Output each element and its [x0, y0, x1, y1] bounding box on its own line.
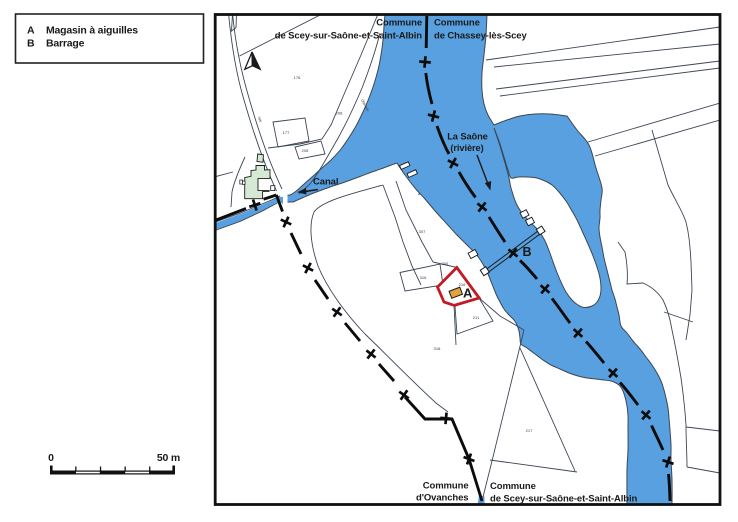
svg-text:Commune: Commune [376, 18, 422, 29]
svg-text:Magasin à aiguilles: Magasin à aiguilles [46, 25, 138, 37]
svg-text:Barrage: Barrage [46, 38, 85, 50]
svg-text:208: 208 [302, 148, 309, 153]
svg-text:211: 211 [473, 315, 480, 320]
svg-text:de Chassey-lès-Scey: de Chassey-lès-Scey [434, 31, 527, 42]
svg-text:La Saône: La Saône [447, 132, 488, 142]
svg-text:316: 316 [420, 275, 427, 280]
svg-text:Commune: Commune [434, 18, 480, 29]
svg-text:318: 318 [434, 346, 441, 351]
svg-text:307: 307 [419, 229, 426, 234]
svg-text:177: 177 [283, 130, 290, 135]
svg-text:(rivière): (rivière) [450, 143, 483, 153]
svg-text:A: A [27, 25, 35, 37]
svg-text:de Scey-sur-Saône-et-Saint-Alb: de Scey-sur-Saône-et-Saint-Albin [275, 31, 423, 42]
svg-text:B: B [523, 245, 532, 259]
svg-text:305: 305 [442, 261, 449, 266]
svg-text:d'Ovanches: d'Ovanches [416, 493, 468, 504]
svg-text:0: 0 [48, 452, 54, 464]
svg-text:de Scey-sur-Saône-et-Saint-Alb: de Scey-sur-Saône-et-Saint-Albin [490, 494, 638, 505]
svg-text:217: 217 [526, 428, 533, 433]
svg-text:A: A [463, 286, 473, 301]
svg-text:50 m: 50 m [157, 452, 180, 464]
svg-text:B: B [27, 38, 35, 50]
svg-text:Canal: Canal [313, 177, 338, 188]
svg-text:216: 216 [459, 282, 466, 287]
svg-text:208: 208 [336, 111, 343, 116]
svg-text:Commune: Commune [423, 481, 469, 492]
svg-text:176: 176 [294, 75, 301, 80]
svg-text:Commune: Commune [490, 481, 536, 492]
